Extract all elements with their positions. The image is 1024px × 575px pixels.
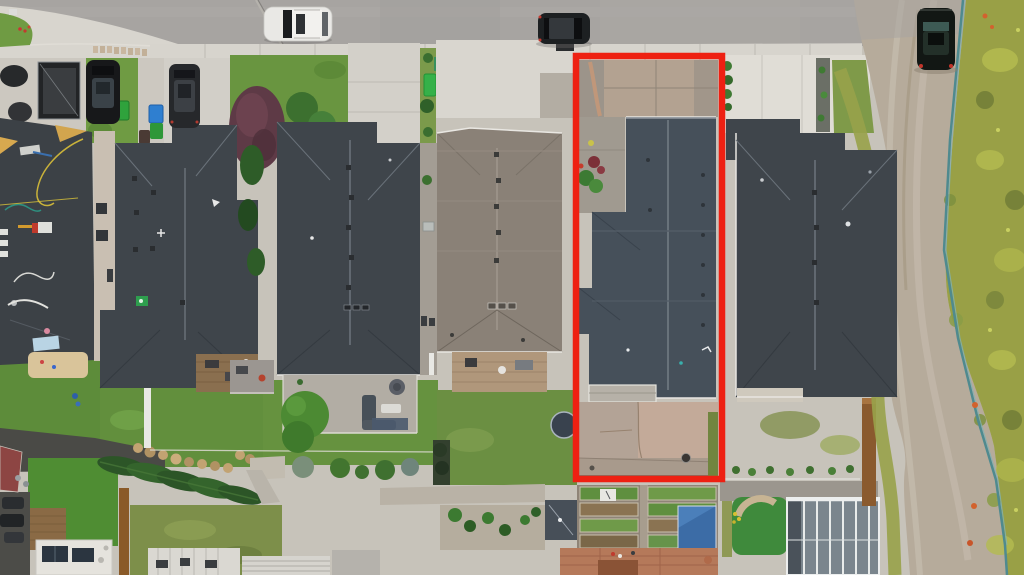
bush xyxy=(420,99,434,113)
greenhouse xyxy=(787,498,879,575)
house-a-construction xyxy=(0,118,95,365)
plant xyxy=(819,67,826,74)
patio-furniture xyxy=(23,481,29,487)
bucket xyxy=(611,552,615,556)
lawn-mottle xyxy=(164,520,216,540)
plant xyxy=(821,92,828,99)
porch-e xyxy=(737,388,803,402)
blue-bin xyxy=(149,105,163,123)
bush xyxy=(423,127,433,137)
lawn-mottle xyxy=(760,411,820,439)
dark-sedan-street xyxy=(536,13,592,48)
pergola-brown xyxy=(598,560,638,575)
terracotta-patio xyxy=(560,548,718,575)
house-b xyxy=(100,125,258,388)
slat-pergola-roof xyxy=(242,556,330,575)
debris-pile xyxy=(8,102,32,122)
lawn-mottle xyxy=(314,61,346,79)
garden-shed xyxy=(545,500,577,540)
aerial-photo[interactable]: Aerial drone photo of a row of suburban … xyxy=(0,0,1024,575)
parked-car-dark xyxy=(2,497,24,509)
deck-b2 xyxy=(230,360,274,394)
house-c xyxy=(277,122,420,375)
gray-pad xyxy=(332,550,380,575)
red-chair xyxy=(259,375,266,382)
green-bin xyxy=(150,123,163,139)
side-path-d xyxy=(540,73,576,118)
toy xyxy=(44,328,50,334)
white-roof-solar xyxy=(36,540,112,575)
dark-car-driveway xyxy=(169,64,200,128)
highlighted-house xyxy=(578,60,718,478)
white-chimney xyxy=(429,353,434,375)
black-suv-driveway xyxy=(86,60,120,124)
lawn-mottle xyxy=(446,428,494,452)
blue-tarp-shed xyxy=(678,506,716,550)
dark-suv-gravel-road xyxy=(914,8,958,74)
maroon-roof xyxy=(0,446,22,492)
toy xyxy=(72,393,78,399)
parked-car-dark xyxy=(0,514,24,527)
house-e xyxy=(726,119,897,402)
lot-backyard-patio xyxy=(578,402,718,478)
patio-furniture xyxy=(15,475,21,481)
debris-pile xyxy=(0,65,28,87)
blue-mat xyxy=(32,336,59,352)
white-suv-street xyxy=(264,7,332,44)
brown-fence xyxy=(119,488,129,575)
dark-band-fence xyxy=(433,440,450,485)
green-bin-bright xyxy=(424,74,436,96)
teal-speck xyxy=(679,361,683,365)
lawn-mottle xyxy=(820,435,860,455)
utility-trailer xyxy=(38,62,80,119)
sand-play-area xyxy=(28,352,88,378)
shrub-spheres xyxy=(440,505,545,550)
grass-strip xyxy=(708,412,718,476)
plant-pot xyxy=(297,379,303,385)
parked-car-dark xyxy=(4,532,24,543)
lot-driveway xyxy=(578,60,718,117)
toy xyxy=(52,365,56,369)
dark-bin xyxy=(139,130,150,144)
house-d xyxy=(437,128,562,352)
blue-rug xyxy=(372,418,408,430)
trailer-roofs xyxy=(148,548,240,575)
white-bench xyxy=(381,404,401,413)
lot-lower-roof xyxy=(589,385,656,402)
bucket xyxy=(631,551,635,555)
toy xyxy=(40,360,44,364)
bucket xyxy=(618,554,622,558)
toy xyxy=(76,402,81,407)
side-path-c-d xyxy=(420,143,437,375)
bush xyxy=(423,53,433,63)
plant xyxy=(818,115,825,122)
fire-pit xyxy=(682,454,691,463)
pot xyxy=(704,556,712,564)
skylight xyxy=(846,222,851,227)
